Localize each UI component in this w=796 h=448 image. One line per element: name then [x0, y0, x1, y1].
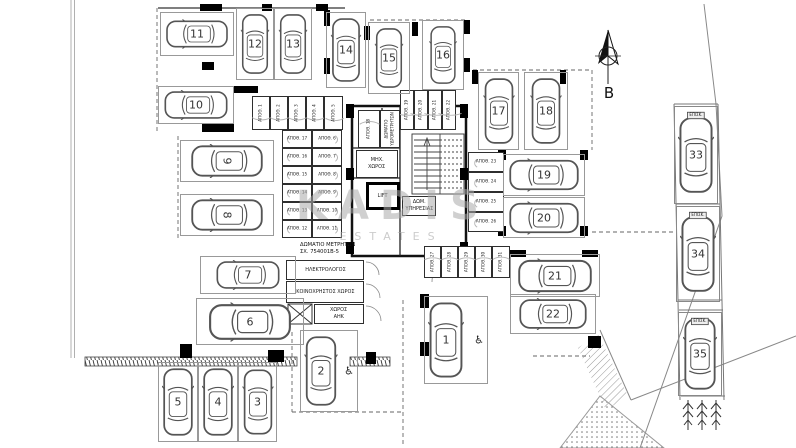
- site-boundary-lines: [71, 0, 75, 358]
- tree-markers: [683, 400, 721, 430]
- eac-crossed-box: [288, 304, 312, 324]
- road-hatch: [85, 357, 390, 366]
- north-label: B: [598, 84, 620, 102]
- staircase: [412, 134, 464, 194]
- walls-and-lines-layer: [0, 0, 796, 448]
- north-arrow-icon: [595, 30, 621, 84]
- door-arcs: [366, 256, 458, 321]
- basement-parking-floor-plan: ΑΠΟΘ. 1ΑΠΟΘ. 2ΑΠΟΘ. 3ΑΠΟΘ. 4ΑΠΟΘ. 5ΑΠΟΘ.…: [0, 0, 796, 448]
- visitor-strip-lines: [674, 104, 725, 400]
- plot-boundary: [600, 4, 796, 448]
- columns: [180, 4, 696, 364]
